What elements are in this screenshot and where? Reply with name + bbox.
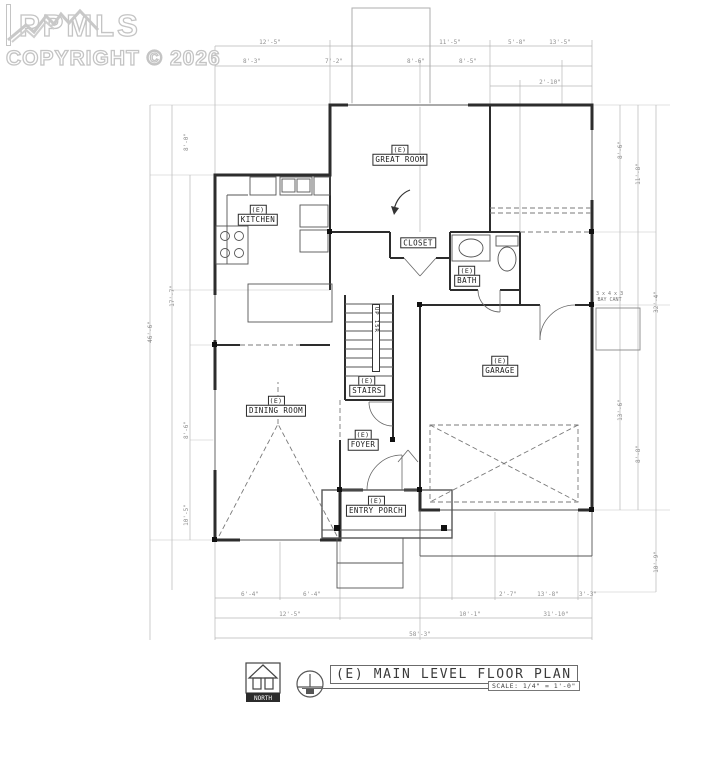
svg-text:13'-5": 13'-5" <box>549 39 571 46</box>
svg-text:58'-3": 58'-3" <box>409 631 431 638</box>
room-label-text: KITCHEN <box>238 214 278 225</box>
dimension-text: 12'-5" 11'-5" 5'-8" 13'-5" 8'-3" 7'-2" 8… <box>147 39 660 638</box>
room-label-foyer: (E) FOYER <box>348 430 379 451</box>
svg-text:11'-8": 11'-8" <box>635 163 642 185</box>
svg-text:13'-8": 13'-8" <box>537 591 559 598</box>
svg-text:3'-3": 3'-3" <box>579 591 597 598</box>
svg-text:46'-6": 46'-6" <box>147 321 154 343</box>
svg-text:5'-8": 5'-8" <box>508 39 526 46</box>
svg-text:10'-9": 10'-9" <box>653 551 660 573</box>
svg-text:8'-0": 8'-0" <box>183 133 190 151</box>
svg-text:10'-5": 10'-5" <box>183 504 190 526</box>
svg-text:NORTH: NORTH <box>254 695 272 702</box>
svg-text:11'-5": 11'-5" <box>439 39 461 46</box>
windows <box>215 105 592 540</box>
svg-text:12'-5": 12'-5" <box>279 611 301 618</box>
svg-text:8'-6": 8'-6" <box>183 421 190 439</box>
svg-text:8'-6": 8'-6" <box>617 141 624 159</box>
svg-text:8'-5": 8'-5" <box>459 58 477 65</box>
mountain-logo-icon <box>6 4 102 48</box>
detail-marker-icon <box>294 668 326 700</box>
title-block: NORTH (E) MAIN LEVEL FLOOR PLAN SCALE: 1… <box>244 660 584 706</box>
room-label-text: CLOSET <box>400 237 436 248</box>
bay-annotation-line2: BAY CANT <box>596 297 623 303</box>
svg-text:2'-10": 2'-10" <box>539 79 561 86</box>
room-label-entry-porch: (E) ENTRY PORCH <box>346 496 406 517</box>
north-arrow-icon: NORTH <box>244 662 284 704</box>
room-label-text: FOYER <box>348 439 379 450</box>
room-label-kitchen: (E) KITCHEN <box>238 205 278 226</box>
exterior-walls <box>215 105 592 540</box>
room-label-text: STAIRS <box>349 385 385 396</box>
roof-projection-outline <box>352 8 430 105</box>
svg-text:7'-2": 7'-2" <box>325 58 343 65</box>
svg-text:31'-10": 31'-10" <box>543 611 568 618</box>
room-label-closet: CLOSET <box>400 237 436 248</box>
svg-text:8'-3": 8'-3" <box>243 58 261 65</box>
scale-note: SCALE: 1/4" = 1'-0" <box>488 681 580 691</box>
svg-text:2'-7": 2'-7" <box>499 591 517 598</box>
room-label-text: BATH <box>454 275 480 286</box>
svg-text:17'-7": 17'-7" <box>169 285 176 307</box>
svg-text:12'-5": 12'-5" <box>259 39 281 46</box>
svg-text:13'-6": 13'-6" <box>617 399 624 421</box>
bay-annotation: 3 x 4 x 3 BAY CANT <box>596 291 623 303</box>
dashed-lines <box>219 208 592 536</box>
svg-text:32'-4": 32'-4" <box>653 291 660 313</box>
stairs-direction-label: UP 15R <box>372 304 380 372</box>
room-label-great-room: (E) GREAT ROOM <box>372 145 427 166</box>
room-label-text: DINING ROOM <box>246 405 306 416</box>
room-label-text: GREAT ROOM <box>372 154 427 165</box>
svg-text:8'-6": 8'-6" <box>407 58 425 65</box>
room-label-dining-room: (E) DINING ROOM <box>246 396 306 417</box>
svg-text:10'-1": 10'-1" <box>459 611 481 618</box>
svg-text:6'-4": 6'-4" <box>241 591 259 598</box>
watermark-copyright: COPYRIGHT © 2026 <box>6 48 221 69</box>
watermark: PPMLS COPYRIGHT © 2026 <box>6 4 221 69</box>
room-label-stairs: (E) STAIRS <box>349 376 385 397</box>
svg-text:8'-8": 8'-8" <box>635 445 642 463</box>
room-label-bath: (E) BATH <box>454 266 480 287</box>
floor-plan-page: PPMLS COPYRIGHT © 2026 <box>0 0 717 768</box>
room-label-text: ENTRY PORCH <box>346 505 406 516</box>
svg-text:6'-4": 6'-4" <box>303 591 321 598</box>
room-label-text: GARAGE <box>482 365 518 376</box>
room-label-garage: (E) GARAGE <box>482 356 518 377</box>
